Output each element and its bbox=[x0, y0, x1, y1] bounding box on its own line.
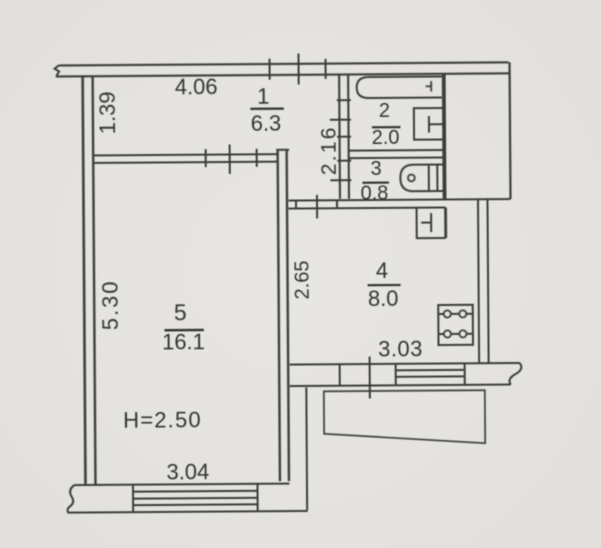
svg-text:5.30: 5.30 bbox=[98, 279, 123, 330]
svg-text:16.1: 16.1 bbox=[162, 329, 205, 354]
svg-text:2: 2 bbox=[379, 100, 390, 122]
svg-text:1: 1 bbox=[257, 84, 269, 109]
svg-text:3: 3 bbox=[370, 158, 381, 180]
svg-text:6.3: 6.3 bbox=[251, 111, 282, 136]
svg-text:1.39: 1.39 bbox=[95, 91, 120, 134]
svg-text:5: 5 bbox=[174, 299, 187, 325]
svg-text:2.16: 2.16 bbox=[317, 125, 340, 175]
svg-text:4: 4 bbox=[376, 258, 388, 283]
svg-text:H=2.50: H=2.50 bbox=[123, 407, 202, 433]
svg-text:8.0: 8.0 bbox=[368, 286, 399, 311]
svg-text:2.65: 2.65 bbox=[291, 260, 313, 299]
svg-text:4.06: 4.06 bbox=[175, 74, 218, 99]
svg-text:0.8: 0.8 bbox=[360, 182, 388, 204]
svg-text:2.0: 2.0 bbox=[372, 127, 400, 149]
svg-text:3.03: 3.03 bbox=[378, 336, 423, 361]
svg-text:3.04: 3.04 bbox=[166, 459, 209, 484]
